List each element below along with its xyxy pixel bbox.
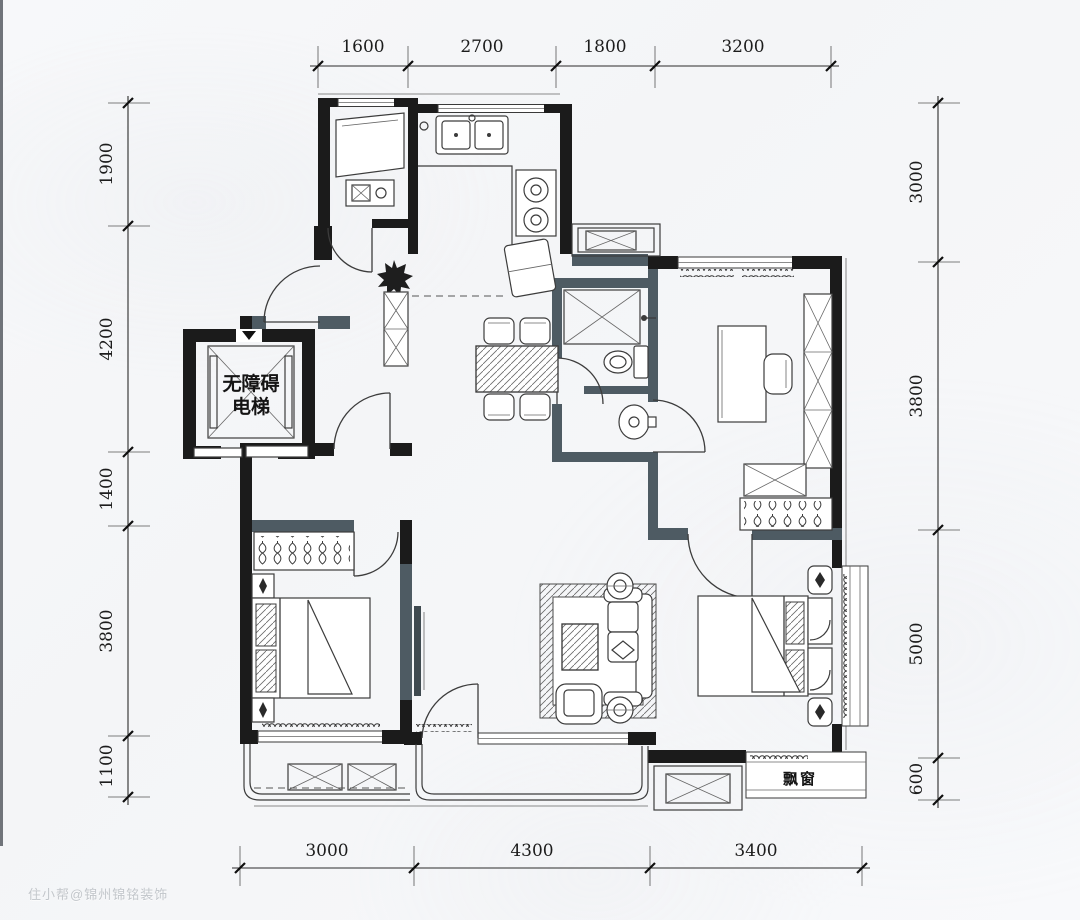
dim-bottom-3: 3400 (734, 841, 777, 861)
curtain (843, 574, 850, 718)
elevator: 无障碍 电梯 (183, 329, 315, 459)
floor-lamp (607, 697, 633, 723)
wardrobe-hangers (254, 532, 354, 570)
floor-plan-page: 1600 2700 1800 3200 3000 4300 3400 (0, 0, 1080, 920)
cabinet-xbox (744, 464, 806, 496)
dim-left-1: 1900 (97, 142, 117, 185)
nightstand-lamp (808, 566, 832, 594)
dim-top-4: 3200 (721, 37, 764, 57)
entry-door (264, 266, 320, 322)
balcony-left (244, 744, 410, 800)
dining-chair (520, 394, 550, 420)
coffee-table (562, 624, 598, 670)
ac-unit (288, 764, 342, 790)
bay-window-label: 飘窗 (783, 770, 817, 788)
dimension-left: 1900 4200 1400 3800 1100 (97, 96, 150, 805)
nightstand (808, 648, 832, 694)
desk (718, 326, 766, 422)
nightstand-lamp (808, 698, 832, 726)
tv-panel (414, 606, 421, 696)
dim-bottom-2: 4300 (510, 841, 553, 861)
refrigerator (504, 239, 556, 298)
armchair (556, 684, 602, 724)
elevator-label-line2: 电梯 (232, 395, 270, 418)
dining-area (476, 318, 558, 420)
dining-chair (484, 318, 514, 344)
washing-machine (346, 180, 394, 206)
double-bed (252, 598, 370, 698)
curtain (416, 724, 472, 732)
kitchen-counter (418, 166, 512, 246)
study-room (680, 269, 832, 530)
shower (564, 290, 656, 344)
dining-chair (484, 394, 514, 420)
dim-left-2: 4200 (97, 317, 117, 360)
dim-top-1: 1600 (341, 37, 384, 57)
ac-platform-top (572, 224, 660, 256)
plant-icon (377, 260, 413, 296)
entry-hall (377, 260, 413, 366)
utility-door (328, 228, 372, 272)
master-bedroom (252, 532, 380, 730)
wardrobe-hangers (740, 498, 832, 530)
nightstand (808, 598, 832, 644)
desk-chair (764, 354, 792, 394)
wardrobe-tall (804, 294, 832, 468)
stove (516, 170, 556, 236)
drain-point (420, 122, 428, 130)
kitchen-sink (436, 115, 508, 154)
dim-top-3: 1800 (583, 37, 626, 57)
dim-left-4: 3800 (97, 609, 117, 652)
utility-room (336, 113, 404, 206)
nightstand (252, 574, 274, 598)
elevator-label-line1: 无障碍 (222, 372, 279, 395)
dim-left-3: 1400 (97, 467, 117, 510)
dining-chair (520, 318, 550, 344)
watermark: 住小帮@锦州锦铭装饰 (28, 884, 168, 903)
second-bedroom (698, 566, 832, 726)
bathroom-sink (619, 405, 656, 439)
dim-bottom-1: 3000 (305, 841, 348, 861)
bathroom-door (557, 358, 603, 404)
dim-right-3: 5000 (907, 622, 927, 665)
bathroom (564, 290, 656, 439)
curtain (750, 754, 808, 761)
shoe-cabinet (384, 292, 408, 366)
dim-left-5: 1100 (97, 744, 117, 787)
dimension-right: 3000 3800 5000 600 (907, 96, 960, 808)
master-bedroom-door (354, 532, 398, 576)
study-door (653, 400, 705, 452)
double-bed (698, 596, 808, 696)
hall-door (334, 393, 390, 449)
dim-right-1: 3000 (907, 160, 927, 203)
curtain (262, 722, 380, 730)
dim-right-2: 3800 (907, 374, 927, 417)
curtain (742, 269, 794, 277)
floor-plan-svg: 1600 2700 1800 3200 3000 4300 3400 (0, 0, 1080, 920)
balcony-living (416, 744, 648, 800)
shaft-bottom-right (654, 766, 742, 810)
dim-top-2: 2700 (460, 37, 503, 57)
dimension-bottom: 3000 4300 3400 (232, 841, 870, 886)
nightstand (252, 698, 274, 722)
dimension-top: 1600 2700 1800 3200 (310, 37, 839, 88)
dining-table (476, 346, 558, 392)
dim-right-4: 600 (907, 763, 927, 795)
kitchen (412, 115, 556, 297)
floor-lamp (607, 573, 633, 599)
bedroom2-door (688, 534, 752, 598)
living-room (414, 573, 656, 732)
toilet (604, 346, 648, 378)
ac-unit (348, 764, 396, 790)
curtain (680, 269, 734, 277)
